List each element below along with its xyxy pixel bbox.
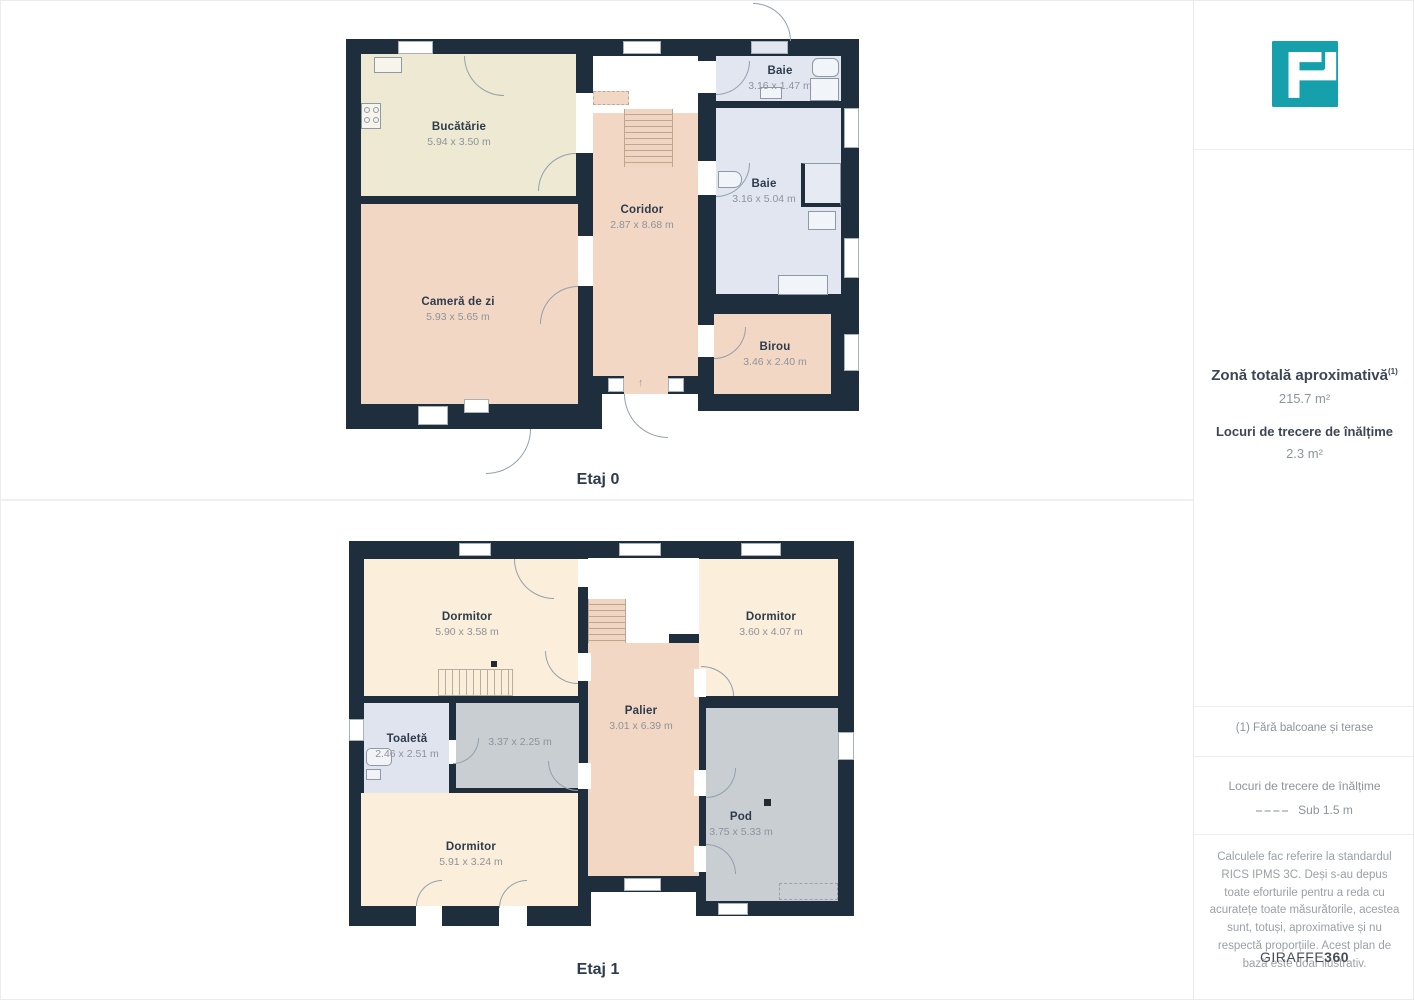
legend-row: Sub 1.5 m xyxy=(1194,803,1414,817)
logo-glyph xyxy=(1272,41,1338,107)
stairs-arrow-icon: ↑ xyxy=(638,377,644,389)
room-dims: 2.46 x 2.51 m xyxy=(375,748,439,760)
panel-divider xyxy=(1,499,1193,501)
room-name: Pod xyxy=(709,811,773,824)
room-dims: 3.16 x 5.04 m xyxy=(732,193,796,205)
window xyxy=(459,543,491,556)
total-area-label: Zonă totală aproximativă(1) xyxy=(1194,367,1414,384)
floor-label-etaj-1: Etaj 1 xyxy=(577,961,620,979)
window xyxy=(349,719,364,741)
room-name: Birou xyxy=(743,341,807,354)
room-dims: 3.75 x 5.33 m xyxy=(709,826,773,838)
room-label: Birou 3.46 x 2.40 m xyxy=(743,341,807,368)
legend-title: Locuri de trecere de înălțime xyxy=(1194,779,1414,793)
bath-fixture xyxy=(778,275,828,295)
headroom-label: Locuri de trecere de înălțime xyxy=(1194,424,1414,439)
door-opening xyxy=(751,41,788,54)
brand-bold: 360 xyxy=(1324,949,1349,965)
door-opening xyxy=(578,559,591,587)
room-name: Toaletă xyxy=(375,733,439,746)
door-opening xyxy=(578,236,593,286)
burner-icon xyxy=(373,117,379,123)
room-dims: 3.60 x 4.07 m xyxy=(739,626,803,638)
info-sidebar: Zonă totală aproximativă(1) 215.7 m² Loc… xyxy=(1193,1,1414,1000)
room-dims: 5.91 x 3.24 m xyxy=(439,856,503,868)
sink-fixture xyxy=(366,769,381,780)
headroom-value: 2.3 m² xyxy=(1194,446,1414,461)
footnote-ref: (1) xyxy=(1388,367,1398,376)
door-opening xyxy=(576,93,593,153)
room-dims: 3.16 x 1.47 m xyxy=(748,80,812,92)
window xyxy=(619,543,661,556)
total-area-text: Zonă totală aproximativă xyxy=(1211,367,1388,384)
burner-icon xyxy=(364,117,370,123)
room-label: 3.37 x 2.25 m xyxy=(488,734,552,748)
room-label: Baie 3.16 x 1.47 m xyxy=(748,65,812,92)
room-name: Dormitor xyxy=(739,611,803,624)
doorway-exterior xyxy=(624,376,668,394)
room-name: Coridor xyxy=(610,204,674,217)
window xyxy=(838,732,854,760)
dashed-line-icon xyxy=(1256,810,1288,812)
room-name: Bucătărie xyxy=(427,121,491,134)
room-label: Baie 3.16 x 5.04 m xyxy=(732,178,796,205)
footnote: (1) Fără balcoane și terase xyxy=(1194,722,1414,734)
room-name: Palier xyxy=(609,705,673,718)
room-label: Coridor 2.87 x 8.68 m xyxy=(610,204,674,231)
room-label: Dormitor 5.91 x 3.24 m xyxy=(439,841,503,868)
room-name: Cameră de zi xyxy=(421,296,494,309)
window xyxy=(623,41,661,54)
brand-regular: GIRAFFE xyxy=(1260,949,1324,965)
room-name: Dormitor xyxy=(435,611,499,624)
room-label: Pod 3.75 x 5.33 m xyxy=(709,811,773,838)
door-arc xyxy=(624,394,668,438)
window xyxy=(844,108,859,148)
wall xyxy=(578,376,602,429)
area-summary: Zonă totală aproximativă(1) 215.7 m² Loc… xyxy=(1194,367,1414,461)
sidebar-divider xyxy=(1194,149,1414,150)
window xyxy=(464,399,489,413)
window xyxy=(844,238,859,278)
room-label: Dormitor 5.90 x 3.58 m xyxy=(435,611,499,638)
sink-fixture xyxy=(374,57,402,73)
low-headroom-area xyxy=(779,883,838,900)
shower-enclosure xyxy=(801,163,841,207)
door-opening xyxy=(578,763,591,789)
door-opening xyxy=(416,906,442,926)
door-arc xyxy=(753,3,791,41)
sidebar-divider xyxy=(1194,706,1414,707)
door-opening xyxy=(694,846,706,872)
total-area-value: 215.7 m² xyxy=(1194,391,1414,406)
staircase xyxy=(588,599,626,643)
burner-icon xyxy=(373,107,379,113)
column-marker xyxy=(491,661,497,667)
window xyxy=(668,378,684,392)
window xyxy=(844,334,859,371)
room-label: Cameră de zi 5.93 x 5.65 m xyxy=(421,296,494,323)
floor-plan-etaj-0: ↑ Bucătărie 5.94 x 3.50 m Cameră de zi 5… xyxy=(346,39,861,429)
room-label: Dormitor 3.60 x 4.07 m xyxy=(739,611,803,638)
room-dims: 5.94 x 3.50 m xyxy=(427,136,491,148)
door-opening xyxy=(578,653,591,681)
room-label: Bucătărie 5.94 x 3.50 m xyxy=(427,121,491,148)
door-opening xyxy=(698,161,716,195)
room-label: Palier 3.01 x 6.39 m xyxy=(609,705,673,732)
window xyxy=(398,41,433,54)
column-marker xyxy=(764,799,771,806)
door-opening xyxy=(698,61,716,93)
room-dims: 3.01 x 6.39 m xyxy=(609,720,673,732)
floor-plan-etaj-1: Dormitor 5.90 x 3.58 m Dormitor 3.60 x 4… xyxy=(349,541,854,926)
sidebar-divider xyxy=(1194,756,1414,757)
window xyxy=(418,406,448,425)
room-dims: 3.37 x 2.25 m xyxy=(488,736,552,748)
room-palier xyxy=(588,643,699,876)
floor-plan-page: ↑ Bucătărie 5.94 x 3.50 m Cameră de zi 5… xyxy=(0,0,1414,1000)
door-opening xyxy=(499,906,527,926)
legend-value: Sub 1.5 m xyxy=(1298,803,1353,817)
room-dims: 5.90 x 3.58 m xyxy=(435,626,499,638)
window xyxy=(608,378,624,392)
staircase xyxy=(438,669,513,696)
bathtub-fixture xyxy=(812,58,839,77)
door-opening xyxy=(694,770,706,796)
burner-icon xyxy=(364,107,370,113)
window xyxy=(624,878,661,891)
room-dims: 2.87 x 8.68 m xyxy=(610,219,674,231)
room-name: Dormitor xyxy=(439,841,503,854)
sink-fixture xyxy=(808,211,836,230)
room-name: Baie xyxy=(732,178,796,191)
floor-label-etaj-0: Etaj 0 xyxy=(577,471,620,489)
brand-wordmark: GIRAFFE360 xyxy=(1194,949,1414,965)
room-dims: 3.46 x 2.40 m xyxy=(743,356,807,368)
door-arc xyxy=(486,429,531,474)
door-opening xyxy=(698,325,714,357)
shower-fixture xyxy=(810,78,839,101)
staircase xyxy=(624,109,673,167)
room-label: Toaletă 2.46 x 2.51 m xyxy=(375,733,439,760)
window xyxy=(718,903,748,915)
room-dims: 5.93 x 5.65 m xyxy=(421,311,494,323)
sidebar-divider xyxy=(1194,834,1414,835)
room-name: Baie xyxy=(748,65,812,78)
low-headroom-area xyxy=(593,91,629,105)
giraffe360-logo-icon xyxy=(1272,41,1338,112)
window xyxy=(741,543,781,556)
